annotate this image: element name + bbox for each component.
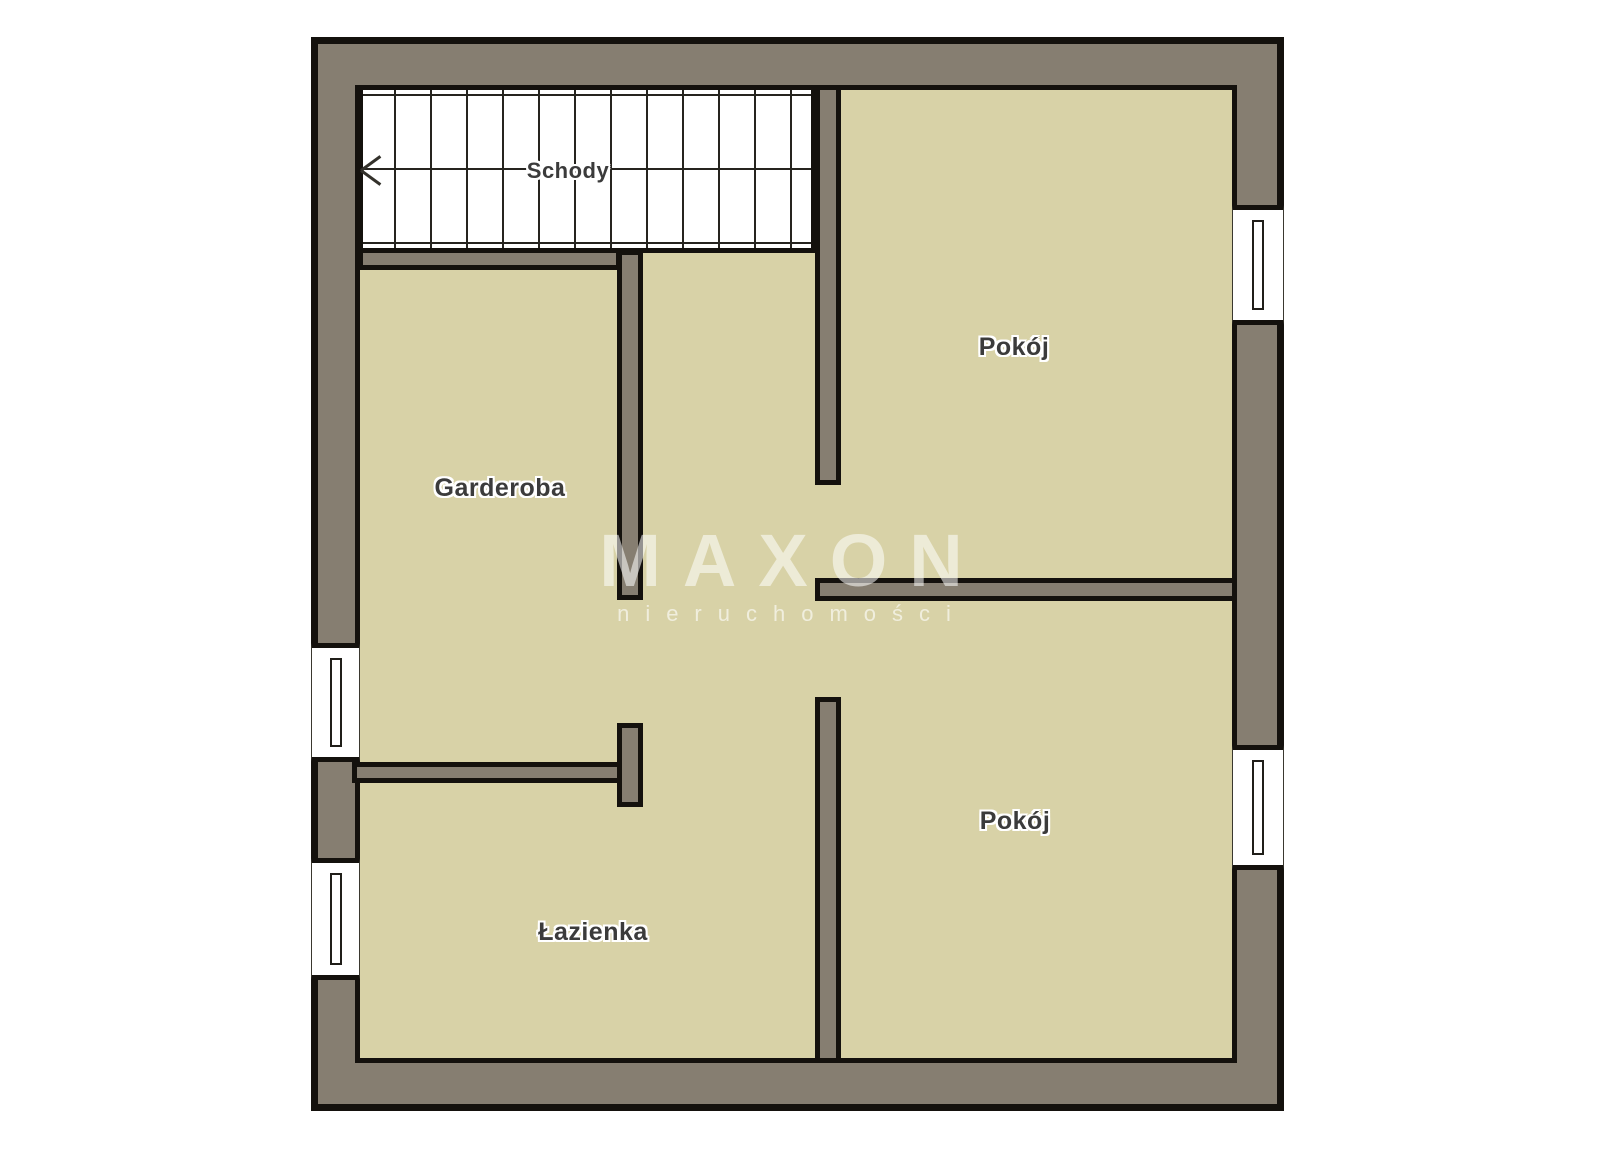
wall-room-bottom-left — [815, 697, 841, 1063]
stair-stringer-bottom — [363, 242, 811, 244]
room-label-pokoj-bottom: Pokój — [905, 807, 1125, 836]
watermark-logo: MAXON — [392, 518, 1192, 603]
room-label-pokoj-top: Pokój — [904, 333, 1124, 362]
window-left-lower — [311, 858, 360, 980]
wall-room-top-left — [815, 85, 841, 485]
room-label-schody: Schody — [458, 158, 678, 184]
room-label-lazienka: Łazienka — [483, 918, 703, 947]
floor-plan: Schody Garderoba Pokój Pokój Łazienka MA… — [0, 0, 1600, 1154]
window-right-upper — [1232, 205, 1284, 325]
window-glazing — [1252, 220, 1264, 310]
wall-garderoba-top — [358, 248, 621, 270]
watermark-subtitle: nieruchomości — [392, 601, 1192, 627]
window-glazing — [1252, 760, 1264, 855]
room-label-garderoba: Garderoba — [390, 474, 610, 503]
wall-bathroom-door-jamb — [617, 723, 643, 807]
window-glazing — [330, 658, 342, 747]
window-right-lower — [1232, 745, 1284, 870]
stair-stringer-top — [363, 94, 811, 96]
window-glazing — [330, 873, 342, 965]
window-left-upper — [311, 643, 360, 762]
wall-bathroom-top — [352, 762, 628, 783]
